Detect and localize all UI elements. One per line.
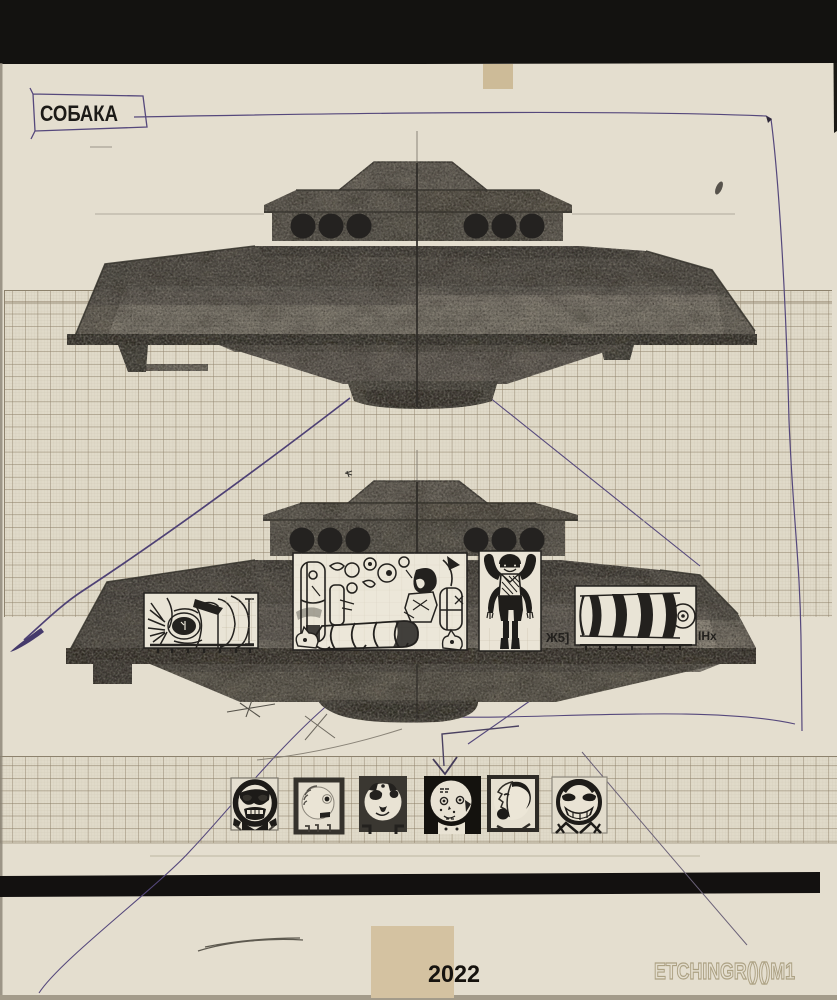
svg-text:СОБАКА: СОБАКА xyxy=(40,101,118,126)
svg-text:2022: 2022 xyxy=(428,961,480,988)
svg-text:IHx: IHx xyxy=(698,629,717,643)
svg-text:ETCHINGR()()M1: ETCHINGR()()M1 xyxy=(654,958,795,984)
svg-text:Ж5]: Ж5] xyxy=(545,630,569,645)
